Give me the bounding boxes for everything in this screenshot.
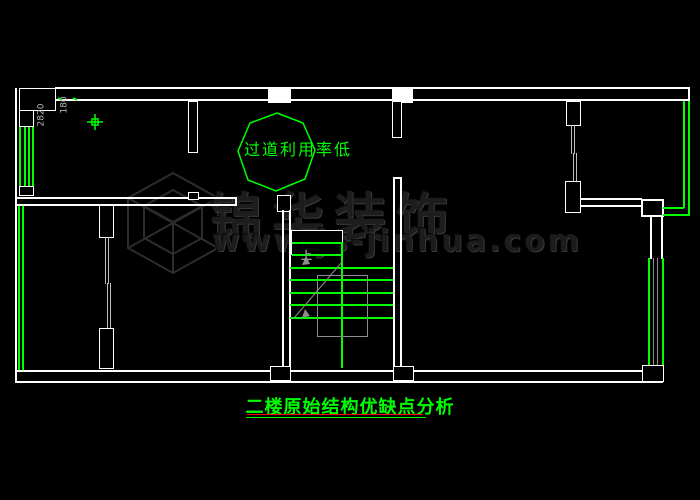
cad-drawing-canvas: 锦华装饰 www.js-jinhua.com <box>0 0 700 500</box>
corridor-note-text: 过道利用率低 <box>244 136 364 160</box>
title-underline-red <box>247 414 423 415</box>
floor-plan: 上 过道利用率低 2820 180 <box>0 0 700 500</box>
dimension-label-right: 180 <box>60 96 70 113</box>
dimension-label-left: 2820 <box>36 104 46 127</box>
drawing-title: 二楼原始结构优缺点分析 <box>0 393 700 419</box>
annotation-shapes <box>0 0 700 500</box>
point-marker-crosshair <box>87 114 103 130</box>
title-underline-green <box>246 417 426 418</box>
